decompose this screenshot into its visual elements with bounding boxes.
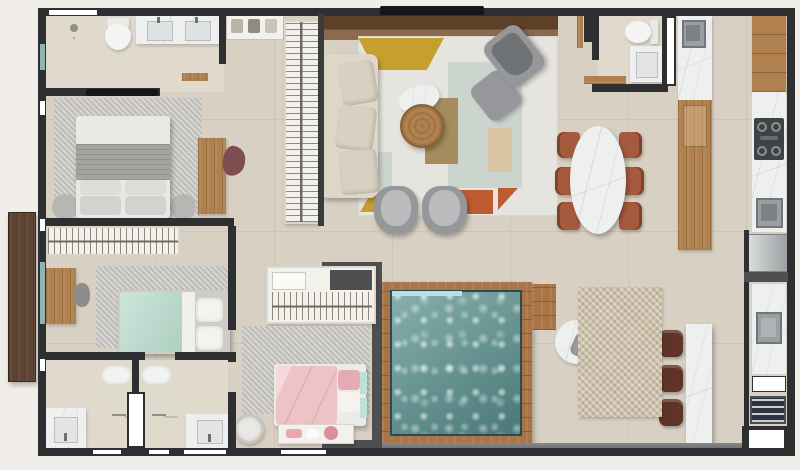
bed-third-throw-mint — [360, 398, 367, 418]
master-closet-rail — [46, 226, 180, 256]
wall-secondbed-bottom-a — [46, 352, 145, 360]
toilet-powder-tank — [650, 20, 658, 44]
desk-master — [198, 138, 226, 214]
bed-master-pillow — [125, 196, 166, 215]
lounge-chair-seat — [429, 190, 460, 226]
toy-pink — [286, 429, 302, 438]
faucet-icon — [64, 433, 67, 441]
pool-overflow-edge — [392, 291, 462, 296]
vanity-master-basin-right — [185, 21, 211, 41]
vanity-master-basin-left — [147, 21, 173, 41]
tub-right — [141, 365, 172, 385]
cooktop-burner — [771, 122, 781, 132]
wall-right — [787, 8, 795, 456]
folded-clothes — [231, 19, 243, 33]
window-left — [39, 100, 46, 116]
faucet-icon — [208, 434, 211, 442]
kitchen-sink-basin — [761, 204, 777, 221]
sink-powder-basin — [636, 52, 658, 78]
wall-closet-living — [318, 14, 324, 226]
shower-head-icon — [70, 24, 78, 32]
laundry-sink-basin — [761, 318, 776, 337]
folded-clothes — [248, 19, 260, 33]
wall-powder-left — [592, 12, 599, 60]
faucet-icon — [157, 17, 160, 23]
bed-third-pillow — [338, 370, 360, 390]
pool-deck-extension — [532, 284, 556, 330]
rug-shape-rust-corner — [498, 188, 518, 210]
terrace-rug — [578, 287, 662, 417]
desk-second — [46, 268, 76, 324]
desk-chair-second — [74, 283, 90, 307]
closet-pink-shelf — [272, 272, 306, 290]
wall-powder-bottom — [592, 84, 668, 92]
bathroom-partition-glass — [127, 392, 145, 448]
door-gap-entry — [39, 218, 46, 232]
entry-bench — [584, 76, 626, 84]
tv-living — [380, 6, 484, 15]
closet-pink-backdrop — [330, 270, 372, 290]
door-gap-entry — [39, 358, 46, 372]
wall-bathright-side — [228, 392, 236, 450]
cooktop-burner — [757, 122, 767, 132]
nightstand-right — [170, 194, 196, 220]
wall-laundry-left — [744, 230, 749, 450]
rug-shape-tan — [488, 128, 512, 172]
window-left-glass — [40, 262, 45, 324]
laundry-shelf-towels — [750, 396, 786, 424]
island-open-shelf — [683, 105, 707, 147]
closet-pink-rail — [272, 292, 372, 320]
window-bottom — [92, 449, 122, 455]
sofa-cushion — [338, 148, 380, 195]
floor-plan — [0, 0, 800, 470]
bed-third-duvet — [276, 366, 337, 424]
coffee-table — [400, 104, 444, 148]
window-bottom — [183, 449, 227, 455]
laundry-window — [752, 376, 786, 392]
wall-masterbed-bottom — [46, 218, 234, 226]
window-left-glass — [40, 44, 45, 70]
wardrobe-tall — [284, 20, 320, 224]
powder-door — [665, 16, 676, 86]
sofa-cushion — [334, 104, 377, 152]
kitchen-upper-cabinet — [752, 16, 786, 92]
toy-pink-round — [324, 426, 338, 440]
shower-head-icon — [152, 414, 166, 416]
bath-wood-shelf — [182, 73, 208, 81]
bed-third-pillow — [338, 392, 360, 412]
island-sink-basin — [686, 25, 700, 41]
shower-head-icon — [112, 414, 126, 416]
faucet-icon — [195, 17, 198, 23]
tub-left — [101, 365, 132, 385]
pool-water — [390, 290, 522, 436]
bed-second-duvet — [120, 292, 182, 352]
bed-second-sheet — [182, 292, 195, 352]
bar-counter — [686, 324, 712, 446]
pouf-fluffy — [234, 414, 264, 444]
cooktop-burner — [757, 146, 767, 156]
window-bottom — [148, 449, 170, 455]
window-top-left — [48, 9, 98, 16]
wall-left — [38, 8, 46, 456]
bed-master-duvet — [76, 144, 170, 180]
wall-secondbed-bottom-b — [175, 352, 236, 360]
lounge-chair-seat — [381, 190, 411, 226]
cooktop-burner — [771, 146, 781, 156]
sofa-cushion — [337, 59, 379, 106]
wall-hall-stub — [584, 12, 592, 42]
wall-masterbath-closet — [219, 16, 226, 64]
bar-stool — [659, 330, 683, 357]
toilet-powder-bowl — [625, 21, 651, 43]
wall-laundry-divider — [744, 272, 788, 282]
bed-master-pillow — [80, 196, 121, 215]
nightstand-left — [52, 194, 78, 220]
bed-second-pillow — [196, 298, 223, 322]
folded-clothes — [265, 19, 277, 33]
tv-master — [86, 89, 158, 96]
bed-master-pillow — [125, 180, 166, 195]
window-bottom — [280, 449, 327, 455]
bar-stool — [659, 365, 683, 392]
wall-secondbed-right — [228, 226, 236, 330]
bed-third-throw-mint — [360, 372, 367, 394]
bed-master-pillow — [80, 180, 121, 195]
toy-white — [306, 429, 319, 438]
entry-door-plank — [8, 212, 36, 382]
refrigerator — [748, 234, 788, 272]
cooktop-knob-row — [760, 136, 778, 140]
bed-second-pillow — [196, 326, 223, 350]
dining-table — [570, 126, 626, 234]
bar-stool — [659, 399, 683, 426]
